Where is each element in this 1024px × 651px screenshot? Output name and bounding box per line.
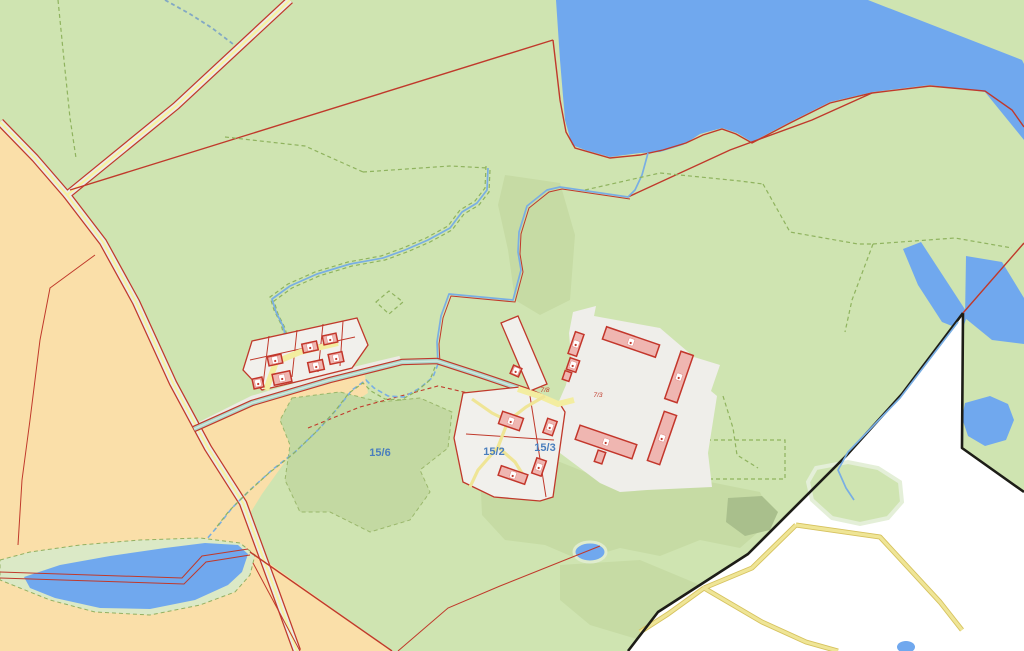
hamlet-building <box>308 360 325 373</box>
parcel-label-15-3: 15/3 <box>534 442 555 454</box>
hamlet-building <box>252 377 264 389</box>
parcel-label-red-left: 7/8 <box>540 387 549 394</box>
pond-center <box>574 542 606 562</box>
hamlet-building <box>328 352 344 365</box>
map-canvas[interactable]: 15/6 15/2 15/3 7/8 7/3 <box>0 0 1024 651</box>
parcel-label-15-6: 15/6 <box>369 447 390 459</box>
hamlet-building <box>267 354 283 366</box>
parcel-label-15-2: 15/2 <box>483 446 504 458</box>
hamlet-building <box>322 333 338 345</box>
parcel-label-red-right: 7/3 <box>593 392 602 399</box>
